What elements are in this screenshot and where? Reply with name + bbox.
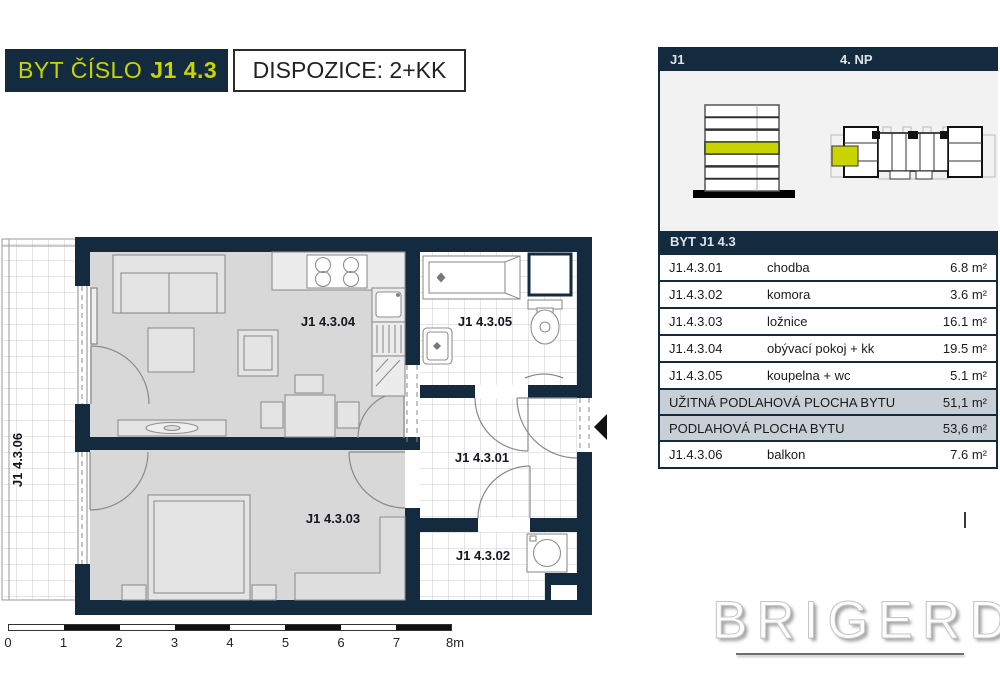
wall-niche (551, 585, 577, 600)
table-row: J1.4.3.05 koupelna + wc 5.1 m² (660, 361, 996, 388)
company-logo: BRIGERD (712, 590, 988, 655)
usable-area-row: UŽITNÁ PODLAHOVÁ PLOCHA BYTU 51,1 m² (660, 388, 996, 414)
apartment-number: J1 4.3 (150, 57, 217, 84)
room-label-bedroom: J1 4.3.03 (306, 511, 360, 526)
entrance-arrow-icon (594, 414, 607, 440)
floor-overview-cell (828, 71, 998, 231)
room-code: J1.4.3.05 (669, 368, 767, 383)
company-logo-text: BRIGERD (712, 590, 988, 651)
info-panel: J1 4. NP (658, 47, 998, 469)
room-name: komora (767, 287, 950, 302)
room-area: 5.1 m² (950, 368, 987, 383)
apartment-title-label: BYT ČÍSLO (18, 57, 142, 84)
floor-label: 4. NP (840, 49, 873, 71)
room-code: J1.4.3.02 (669, 287, 767, 302)
floorplan-sheet: BYT ČÍSLO J1 4.3 DISPOZICE: 2+KK (0, 0, 1000, 700)
layout-type-label: DISPOZICE: 2+KK (253, 57, 447, 84)
apartment-title: BYT ČÍSLO J1 4.3 (5, 49, 228, 92)
balcony-area (2, 239, 78, 600)
room-area: 3.6 m² (950, 287, 987, 302)
room-area: 7.6 m² (950, 447, 987, 462)
scale-bar-segments (8, 624, 452, 631)
table-row: J1.4.3.04 obývací pokoj + kk 19.5 m² (660, 334, 996, 361)
layout-type-box: DISPOZICE: 2+KK (233, 49, 466, 92)
room-label-living: J1 4.3.04 (301, 314, 356, 329)
floor-area-row: PODLAHOVÁ PLOCHA BYTU 53,6 m² (660, 414, 996, 440)
total-area: 51,1 m² (943, 395, 987, 410)
room-code: J1.4.3.04 (669, 341, 767, 356)
highlighted-unit (832, 146, 858, 166)
washing-machine (527, 534, 567, 572)
room-name: koupelna + wc (767, 368, 950, 383)
building-block-label: J1 (670, 49, 684, 71)
room-name: ložnice (767, 314, 943, 329)
room-label-storage: J1 4.3.02 (456, 548, 510, 563)
table-row: J1.4.3.03 ložnice 16.1 m² (660, 307, 996, 334)
room-label-balcony: J1 4.3.06 (10, 433, 25, 487)
installation-shaft (529, 254, 571, 295)
floor-plan-drawing: J1 4.3.04 J1 4.3.05 J1 4.3.01 J1 4.3.02 … (0, 228, 612, 664)
room-area: 6.8 m² (950, 260, 987, 275)
total-area: 53,6 m² (943, 421, 987, 436)
stray-mark (964, 512, 966, 528)
total-label: PODLAHOVÁ PLOCHA BYTU (669, 421, 943, 436)
room-area: 16.1 m² (943, 314, 987, 329)
room-name: chodba (767, 260, 950, 275)
room-name: obývací pokoj + kk (767, 341, 943, 356)
table-row: J1.4.3.02 komora 3.6 m² (660, 280, 996, 307)
balcony-row: J1.4.3.06 balkon 7.6 m² (660, 440, 996, 467)
table-row: J1.4.3.01 chodba 6.8 m² (660, 253, 996, 280)
panel-header: J1 4. NP (660, 49, 996, 71)
scale-bar-labels: 0 1 2 3 4 5 6 7 8m (8, 635, 468, 653)
locator-diagrams (660, 71, 996, 231)
room-name: balkon (767, 447, 950, 462)
room-area: 19.5 m² (943, 341, 987, 356)
total-label: UŽITNÁ PODLAHOVÁ PLOCHA BYTU (669, 395, 943, 410)
room-label-bathroom: J1 4.3.05 (458, 314, 512, 329)
highlighted-floor (705, 142, 779, 154)
building-elevation-diagram (660, 71, 828, 231)
scale-bar: 0 1 2 3 4 5 6 7 8m (8, 624, 468, 658)
company-logo-underline (736, 653, 964, 655)
floor-overview-diagram (828, 71, 998, 231)
room-label-hallway: J1 4.3.01 (455, 450, 509, 465)
building-elevation-cell (660, 71, 828, 231)
room-code: J1.4.3.03 (669, 314, 767, 329)
room-code: J1.4.3.01 (669, 260, 767, 275)
table-header: BYT J1 4.3 (660, 231, 996, 253)
room-code: J1.4.3.06 (669, 447, 767, 462)
entrance-recess (577, 398, 592, 452)
